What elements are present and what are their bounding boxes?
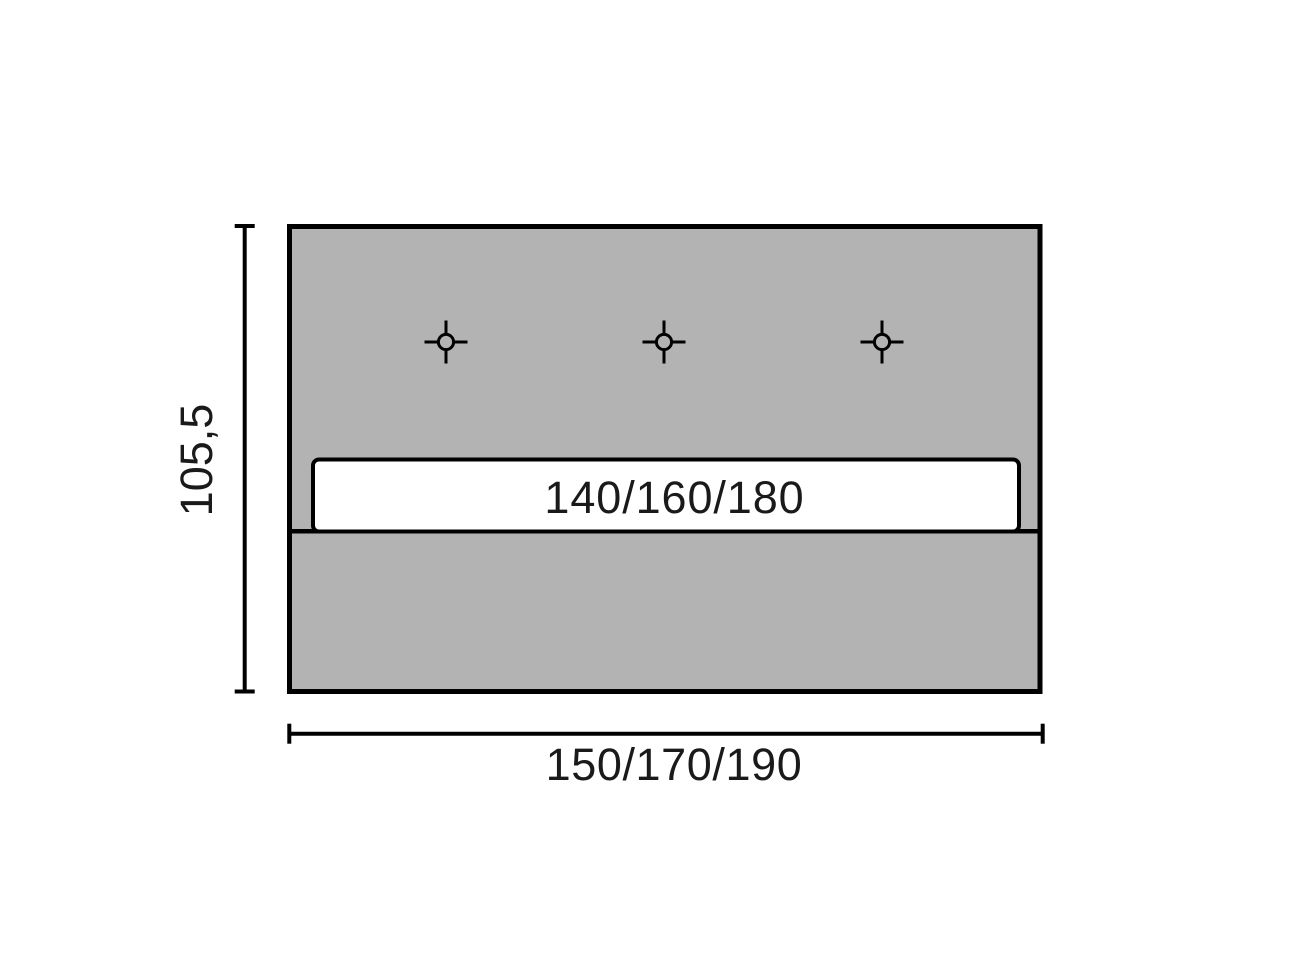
svg-text:140/160/180: 140/160/180	[544, 472, 804, 523]
svg-text:150/170/190: 150/170/190	[546, 739, 803, 790]
svg-text:105,5: 105,5	[171, 404, 222, 517]
